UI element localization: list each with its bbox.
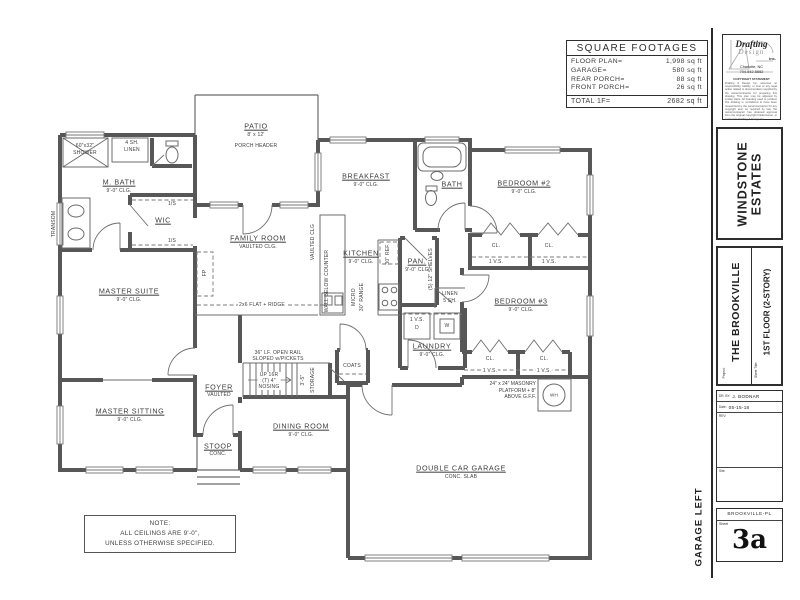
logo-name-mid: Design (723, 48, 780, 56)
date-row: Date: 05-15-18 (717, 402, 782, 413)
stair-rail-note-line2: SLOPED w/PICKETS (252, 356, 303, 362)
porch-header-label: PORCH HEADER (235, 143, 278, 149)
stair-rail-note: 36" LF. OPEN RAIL SLOPED w/PICKETS (252, 350, 303, 362)
project-box-divider (751, 248, 752, 384)
site-section: Site: (717, 468, 782, 501)
sheet-title: 1ST FLOOR (2-STORY) (763, 269, 772, 356)
room-clg-bed2: 9'-0" CLG. (511, 189, 536, 195)
footage-total-row: TOTAL 1F= 2682 sq ft (567, 95, 707, 107)
room-label-laundry: LAUNDRY (413, 343, 451, 352)
room-clg-family: VAULTED CLG. (239, 244, 277, 250)
closet-shelf-label: 1 V.S. (489, 259, 503, 265)
room-label-mbath: M. BATH (103, 179, 136, 188)
refrigerator-label: 30" REF. (385, 243, 391, 264)
titleblock-divider-line (711, 28, 713, 578)
footage-label: GARAGE= (571, 67, 607, 76)
water-heater-label: WH (550, 392, 558, 398)
drawn-by-value: J. BODNAR (732, 394, 759, 399)
closet-shelf-label: 1 V.S. (536, 368, 552, 374)
room-clg-garage: CONC. SLAB (445, 474, 477, 480)
toilet-icon (426, 191, 437, 206)
footage-rows: FLOOR PLAN= 1,998 sq ft GARAGE= 580 sq f… (567, 56, 707, 95)
stairs (243, 363, 330, 397)
wall-below-counter-label: WALL BELOW COUNTER (324, 250, 330, 312)
room-size-patio: 8' x 12' (247, 132, 264, 138)
linen4-label2: LINEN (124, 147, 140, 153)
drafting-company-logo: Drafting Design Inc. Charlotte, NC 704-5… (722, 34, 781, 120)
note-line2: ALL CEILINGS ARE 9'-0", (85, 529, 235, 539)
room-label-master-suite: MASTER SUITE (99, 288, 159, 297)
walls (60, 135, 592, 560)
bifold-doors (472, 223, 578, 352)
sink-icon (68, 205, 84, 217)
fireplace-label: FP (202, 270, 208, 277)
logo-city: Charlotte, NC (723, 65, 780, 69)
file-name: BROOKVILLE-PL (717, 509, 782, 521)
closet-label: CL. (486, 356, 494, 362)
closet-label: CL. (545, 243, 553, 249)
shower-size-label: 60"x32" (76, 143, 95, 149)
footage-label: FRONT PORCH= (571, 84, 630, 93)
sheet-number: 3a (717, 525, 782, 555)
room-label-breakfast: BREAKFAST (342, 173, 390, 182)
storage-label: STORAGE (310, 367, 316, 393)
room-clg-foyer: VAULTED (207, 392, 231, 398)
room-label-bath: BATH (441, 181, 462, 190)
stair-up-note: UP 16R (T) 4" NOSING (258, 372, 281, 390)
room-label-pantry: PAN. (408, 258, 427, 267)
sheet-title-label: Sheet Title: (754, 362, 758, 378)
footage-label: FLOOR PLAN= (571, 58, 622, 67)
footage-value: 88 sq ft (677, 76, 703, 85)
pantry-shelves-label: (5) 12" SHELVES (428, 248, 434, 290)
drawn-by-row: DR. BY: J. BODNAR (717, 391, 782, 402)
vaulted-clg-label: VAULTED CLG (310, 224, 316, 260)
copyright-title: COPYRIGHT STATEMENT (723, 77, 780, 81)
logo-phone: 704-542-5652 (723, 70, 780, 74)
washer-label: W (445, 323, 450, 329)
footage-row: FLOOR PLAN= 1,998 sq ft (571, 58, 702, 67)
linen4-label: 4 SH. (125, 140, 139, 146)
room-label-bed3: BEDROOM #3 (494, 298, 547, 307)
room-clg-laundry: 9'-0" CLG. (419, 352, 444, 358)
subdivision-name: WINDSTONE ESTATES (736, 141, 764, 226)
project-label: Project: (722, 368, 726, 379)
revisions-section: REV: (717, 413, 782, 468)
note-line1: NOTE: (85, 519, 235, 529)
room-clg-breakfast: 9'-0" CLG. (353, 182, 378, 188)
footage-label: REAR PORCH= (571, 76, 625, 85)
range-label: 30" RANGE (359, 283, 365, 311)
room-clg-pantry: 9'-0" CLG (405, 267, 428, 273)
room-label-dining: DINING ROOM (273, 423, 329, 432)
closet-shelf-label: 1 V.S. (482, 368, 498, 374)
project-title-box: THE BROOKVILLE 1ST FLOOR (2-STORY) Proje… (716, 246, 783, 386)
footage-row: REAR PORCH= 88 sq ft (571, 76, 702, 85)
general-note-box: NOTE: ALL CEILINGS ARE 9'-0", UNLESS OTH… (84, 515, 236, 553)
coats-label: COATS (343, 363, 361, 369)
rev-label: REV: (719, 414, 726, 418)
project-name: THE BROOKVILLE (730, 262, 742, 362)
sheet-number-box: BROOKVILLE-PL Sheet 3a (716, 508, 783, 562)
note-line3: UNLESS OTHERWISE SPECIFIED. (85, 539, 235, 549)
sink-icon (68, 228, 84, 240)
masonry-platform-note: 24" x 24" MASONRY PLATFORM + 8" ABOVE G.… (470, 381, 536, 401)
orientation-note: GARAGE LEFT (694, 487, 705, 566)
footage-total-label: TOTAL 1F= (571, 98, 610, 105)
copyright-text: Drafting & Design Inc. assumes no respon… (725, 82, 777, 121)
site-label: Site: (719, 469, 725, 473)
subdivision-line1: WINDSTONE (736, 141, 750, 226)
floor-plan-sheet: M. BATH 9'-0" CLG. WIC MASTER SUITE 9'-0… (0, 0, 800, 600)
room-label-wic: WIC (155, 217, 171, 226)
square-footage-table: SQUARE FOOTAGES FLOOR PLAN= 1,998 sq ft … (566, 40, 708, 108)
footage-total-value: 2682 sq ft (667, 98, 702, 105)
laundry-shelf-label: 1 V.S. (410, 317, 424, 323)
linen5-label2: 5 SH. (443, 298, 457, 304)
closet-label: CL. (492, 243, 500, 249)
subdivision-line2: ESTATES (750, 141, 764, 226)
shelf-label: 1/S (168, 201, 176, 207)
stair-nosing-label2: NOSING (259, 384, 280, 390)
storage-dim-label: 3'-5" (300, 375, 306, 386)
room-clg-master-suite: 9'-0" CLG. (116, 297, 141, 303)
sheet-number-cell: Sheet 3a (717, 521, 782, 561)
footage-row: FRONT PORCH= 26 sq ft (571, 84, 702, 93)
room-label-kitchen: KITCHEN (343, 250, 379, 259)
footage-value: 1,998 sq ft (666, 58, 702, 67)
shower-label: SHOWER (73, 150, 97, 156)
dryer-label: D (415, 325, 419, 331)
micro-label: MICRO (351, 288, 357, 306)
room-clg-bed3: 9'-0" CLG. (508, 307, 533, 313)
transom-label: TRANSOM (51, 211, 57, 237)
closet-label: CL. (540, 356, 548, 362)
footage-title: SQUARE FOOTAGES (567, 41, 707, 56)
room-clg-mbath: 9'-0" CLG. (106, 188, 131, 194)
subdivision-name-box: WINDSTONE ESTATES (716, 127, 783, 240)
date-value: 05-15-18 (729, 405, 750, 410)
room-label-family: FAMILY ROOM (230, 235, 286, 244)
drawn-by-label: DR. BY: (719, 394, 730, 398)
room-clg-kitchen: 9'-0" CLG. (348, 259, 373, 265)
room-clg-dining: 9'-0" CLG. (288, 432, 313, 438)
shelf-label: 1/S (168, 238, 176, 244)
footage-row: GARAGE= 580 sq ft (571, 67, 702, 76)
room-clg-stoop: CONC. (209, 451, 226, 457)
room-label-master-sitting: MASTER SITTING (96, 408, 165, 417)
logo-suffix: Inc. (769, 56, 776, 61)
room-label-garage: DOUBLE CAR GARAGE (416, 465, 506, 474)
closet-shelf-label: 1 V.S. (542, 259, 556, 265)
room-label-patio: PATIO (244, 123, 268, 132)
ridge-label: 2x6 FLAT + RIDGE (238, 302, 286, 308)
drawing-info-box: DR. BY: J. BODNAR Date: 05-15-18 REV: Si… (716, 390, 783, 502)
date-label: Date: (719, 405, 727, 409)
footage-value: 580 sq ft (672, 67, 702, 76)
linen5-label: LINEN (442, 291, 458, 297)
masonry-note-line3: ABOVE G.F.F. (470, 394, 536, 401)
room-clg-master-sitting: 9'-0" CLG. (117, 417, 142, 423)
toilet-icon (166, 147, 178, 163)
footage-value: 26 sq ft (677, 84, 703, 93)
room-label-bed2: BEDROOM #2 (497, 180, 550, 189)
